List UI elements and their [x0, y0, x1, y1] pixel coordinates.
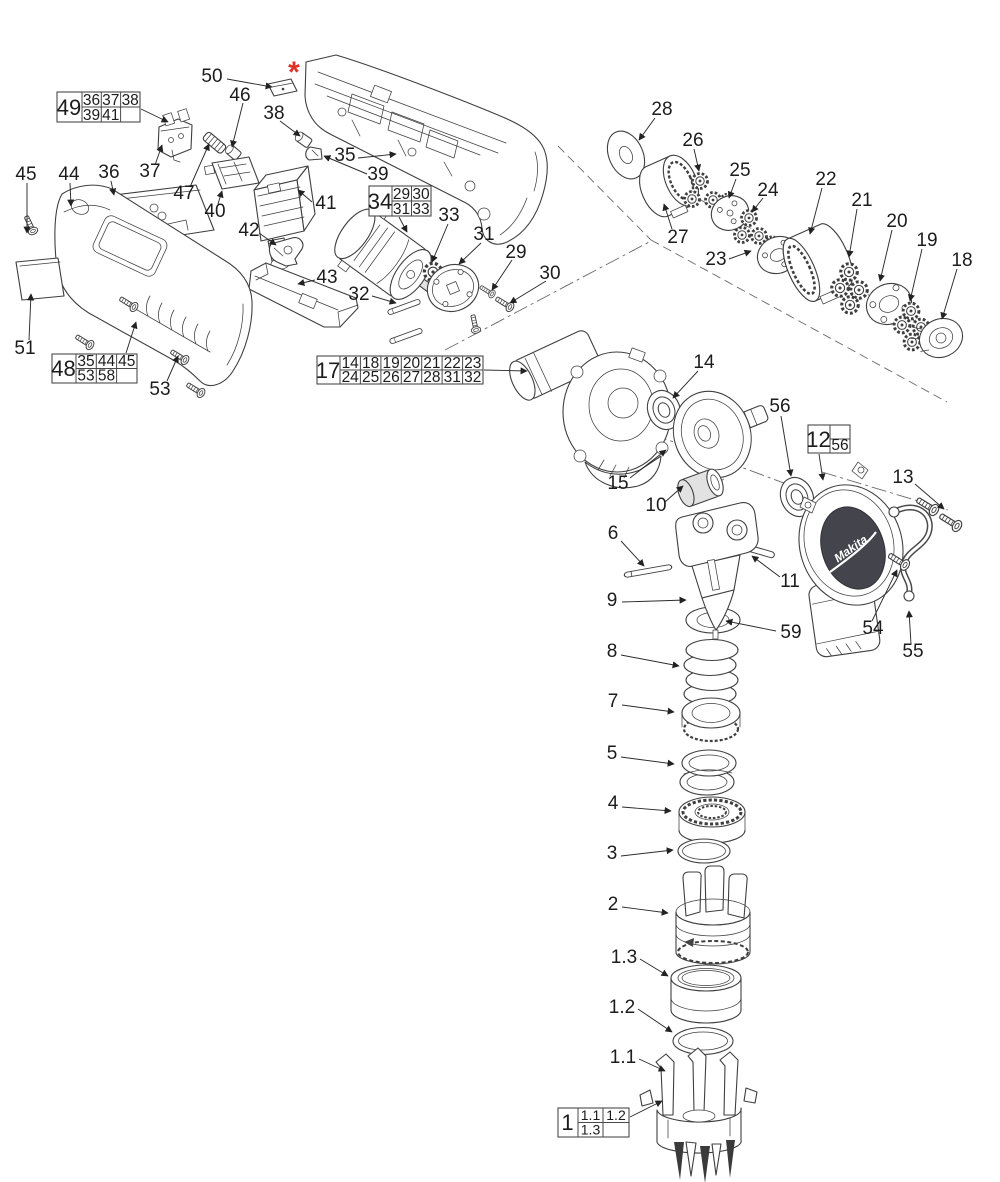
box48-id: 48	[51, 356, 75, 381]
part-lock-button-40	[204, 157, 259, 189]
callout-22: 22	[815, 169, 836, 190]
callout-15: 15	[607, 473, 628, 494]
callout-23: 23	[705, 249, 726, 270]
callout-5: 5	[607, 743, 618, 764]
callout-8: 8	[607, 641, 618, 662]
callout-3: 3	[607, 843, 618, 864]
callout-30: 30	[539, 263, 560, 284]
callout-14: 14	[693, 352, 715, 373]
part-oring-3	[678, 839, 730, 863]
callout-26: 26	[682, 130, 703, 151]
part-rings-5	[680, 750, 736, 795]
group-box-1: 1 1.1 1.2 1.3	[558, 1107, 629, 1138]
callout-1-1: 1.1	[610, 1047, 636, 1068]
box48-cell: 53	[77, 368, 94, 385]
box12-cell: 56	[831, 437, 848, 454]
callout-32: 32	[348, 284, 369, 305]
callout-9: 9	[607, 590, 618, 611]
part-chuck-1-1	[640, 1048, 757, 1182]
callout-54: 54	[862, 618, 884, 639]
part-gear-housing	[504, 328, 671, 487]
box12-id: 12	[806, 427, 830, 452]
callout-38: 38	[263, 103, 284, 124]
asterisk-mark: *	[288, 56, 300, 89]
box1-cell: 1.2	[606, 1107, 626, 1123]
box17-id: 17	[316, 358, 340, 383]
callout-6: 6	[608, 523, 619, 544]
part-oring-1-2	[673, 1028, 733, 1055]
box17-cell: 27	[403, 369, 420, 386]
callout-40: 40	[204, 201, 225, 222]
callout-20: 20	[886, 211, 907, 232]
part-bracket-43	[249, 263, 358, 327]
callout-11: 11	[780, 571, 800, 592]
callout-2: 2	[608, 894, 619, 915]
group-box-49: 49 36 37 38 39 41	[57, 92, 140, 124]
box1-id: 1	[561, 1110, 573, 1135]
callout-37: 37	[139, 161, 160, 182]
callout-1-2: 1.2	[609, 997, 635, 1018]
callout-18: 18	[951, 250, 972, 271]
callout-39: 39	[367, 164, 388, 185]
callout-35: 35	[334, 145, 355, 166]
box1-cell: 1.3	[581, 1122, 601, 1138]
box17-cell: 32	[464, 369, 481, 386]
callout-19: 19	[916, 230, 937, 251]
callout-1-3: 1.3	[611, 947, 637, 968]
callout-46: 46	[229, 85, 250, 106]
box49-cell: 39	[83, 107, 100, 124]
callout-13: 13	[892, 467, 913, 488]
callout-50: 50	[201, 66, 222, 87]
callout-10: 10	[645, 495, 666, 516]
part-spring-8	[684, 640, 738, 705]
callout-28: 28	[651, 99, 672, 120]
callout-4: 4	[608, 793, 619, 814]
callout-59: 59	[780, 622, 801, 643]
callout-56: 56	[769, 396, 790, 417]
callout-36: 36	[98, 162, 119, 183]
part-label-plate-51	[16, 258, 64, 300]
callout-21: 21	[851, 190, 872, 211]
exploded-parts-diagram: Makita	[0, 0, 1000, 1182]
callout-45: 45	[15, 164, 36, 185]
callout-53: 53	[149, 379, 170, 400]
group-box-12: 12 56	[806, 425, 850, 454]
part-switch-plate-37	[158, 109, 192, 162]
box17-cell: 26	[382, 369, 399, 386]
callout-51: 51	[14, 338, 35, 359]
group-box-48: 48 35 44 45 53 58	[51, 353, 137, 385]
part-ring-7	[682, 698, 740, 741]
box48-cell: 58	[98, 368, 115, 385]
callout-29: 29	[505, 242, 526, 263]
part-clip-39	[306, 147, 322, 160]
box49-id: 49	[57, 95, 81, 120]
callout-33: 33	[438, 205, 459, 226]
callout-42: 42	[238, 220, 259, 241]
box34-cell: 33	[412, 201, 429, 218]
box49-cell: 41	[102, 107, 119, 124]
group-box-34: 34 29 30 31 33	[368, 186, 431, 218]
box48-cell: 45	[118, 353, 135, 370]
callout-7: 7	[608, 691, 619, 712]
box17-cell: 25	[362, 369, 379, 386]
part-cam-sleeve-2	[676, 866, 750, 964]
box49-cell: 38	[122, 92, 139, 109]
callout-41: 41	[315, 193, 336, 214]
group-box-17: 17 14 18 19 20 21 22 23 24 25 26 27 28 3…	[316, 355, 483, 386]
callout-27: 27	[667, 227, 688, 248]
part-pin-6	[624, 564, 672, 577]
callout-55: 55	[902, 641, 923, 662]
part-pins-32	[387, 299, 423, 344]
part-ring-1-3	[671, 965, 741, 1023]
callout-47: 47	[173, 183, 194, 204]
box17-cell: 24	[342, 369, 360, 386]
callout-44: 44	[58, 164, 80, 185]
callout-43: 43	[316, 267, 337, 288]
callout-31: 31	[473, 224, 494, 245]
box34-id: 34	[368, 189, 392, 214]
box17-cell: 31	[444, 369, 461, 386]
callout-24: 24	[757, 180, 779, 201]
box17-cell: 28	[423, 369, 440, 386]
callout-25: 25	[729, 160, 750, 181]
box34-cell: 31	[393, 201, 410, 218]
part-spindle-gear-15	[661, 372, 783, 490]
